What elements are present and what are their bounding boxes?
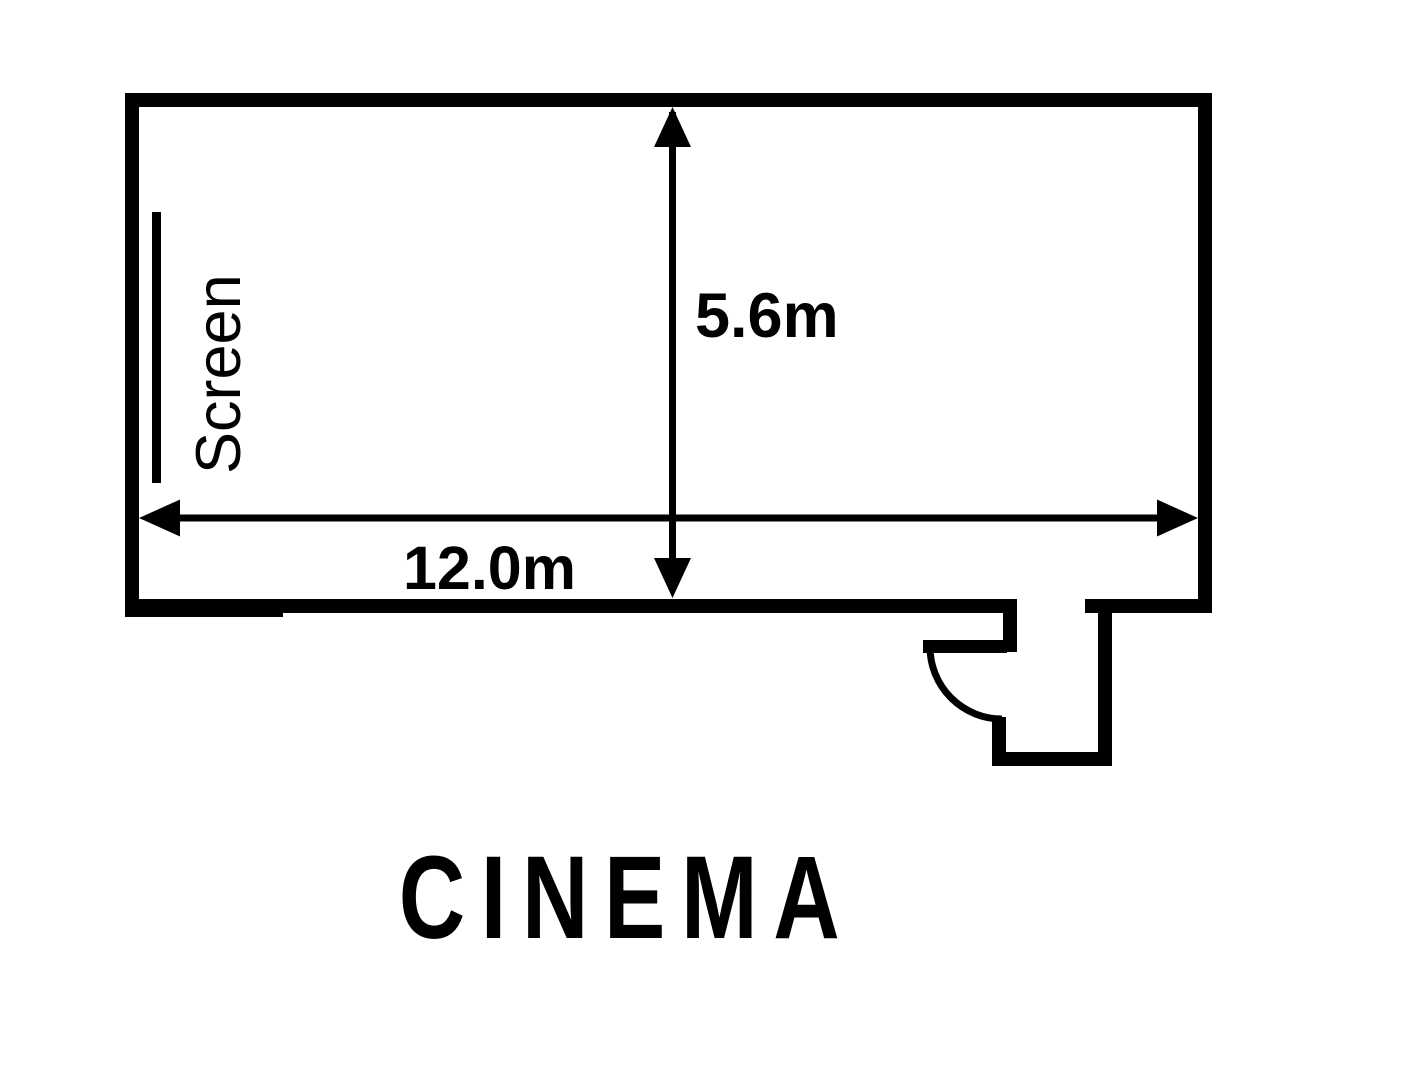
wall-top — [125, 93, 1212, 107]
door-frame-bottom — [992, 752, 1112, 766]
door-frame-right — [1098, 606, 1112, 766]
dimension-height — [654, 107, 691, 598]
arrowhead-left-icon — [139, 500, 180, 537]
screen — [152, 212, 161, 483]
floor-plan: Screen 5.6m 12.0m CINEMA — [0, 0, 1412, 1080]
screen-label: Screen — [184, 274, 254, 474]
height-dimension-label: 5.6m — [695, 281, 839, 351]
screen-line — [152, 212, 161, 483]
room-walls — [125, 93, 1212, 617]
wall-bottom-left-step — [125, 599, 283, 617]
width-dimension-line — [150, 515, 1188, 522]
wall-right — [1198, 93, 1212, 613]
dimension-width — [139, 500, 1198, 537]
arrowhead-right-icon — [1157, 500, 1198, 537]
arrowhead-down-icon — [654, 558, 691, 598]
height-dimension-line — [669, 112, 676, 584]
door-leaf — [923, 640, 1007, 653]
door — [923, 606, 1112, 766]
arrowhead-up-icon — [654, 107, 691, 147]
floor-plan-svg: Screen 5.6m 12.0m CINEMA — [0, 0, 1412, 1080]
width-dimension-label: 12.0m — [403, 534, 576, 602]
door-swing-arc — [930, 647, 1002, 719]
room-name-label: CINEMA — [399, 832, 856, 964]
wall-left — [125, 93, 139, 613]
